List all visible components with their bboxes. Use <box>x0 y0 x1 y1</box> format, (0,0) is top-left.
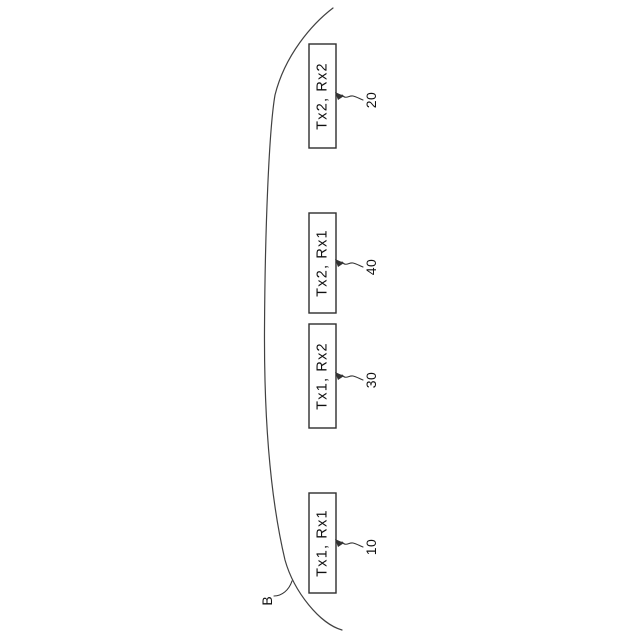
figure-canvas: B Tx2, Rx2 20 Tx2, Rx1 40 Tx1, Rx2 30 Tx… <box>0 0 640 640</box>
unit-label-tx1-rx1: Tx1, Rx1 <box>315 509 331 577</box>
unit-group-10: Tx1, Rx1 10 <box>309 493 379 593</box>
ref-number-30: 30 <box>363 372 379 389</box>
ref-number-20: 20 <box>363 92 379 109</box>
leader-line-20 <box>335 92 363 100</box>
ref-number-10: 10 <box>363 539 379 556</box>
boundary-label: B <box>259 596 275 605</box>
patent-diagram: B Tx2, Rx2 20 Tx2, Rx1 40 Tx1, Rx2 30 Tx… <box>0 0 640 640</box>
unit-label-tx2-rx2: Tx2, Rx2 <box>315 62 331 130</box>
unit-group-30: Tx1, Rx2 30 <box>309 324 379 428</box>
unit-group-40: Tx2, Rx1 40 <box>309 213 379 313</box>
unit-group-20: Tx2, Rx2 20 <box>309 44 379 148</box>
leader-line-30 <box>335 372 363 380</box>
unit-label-tx2-rx1: Tx2, Rx1 <box>315 229 331 297</box>
leader-line-10 <box>335 539 363 547</box>
boundary-leader-line <box>274 581 292 596</box>
leader-line-40 <box>335 259 363 267</box>
unit-label-tx1-rx2: Tx1, Rx2 <box>315 342 331 410</box>
ref-number-40: 40 <box>363 259 379 276</box>
